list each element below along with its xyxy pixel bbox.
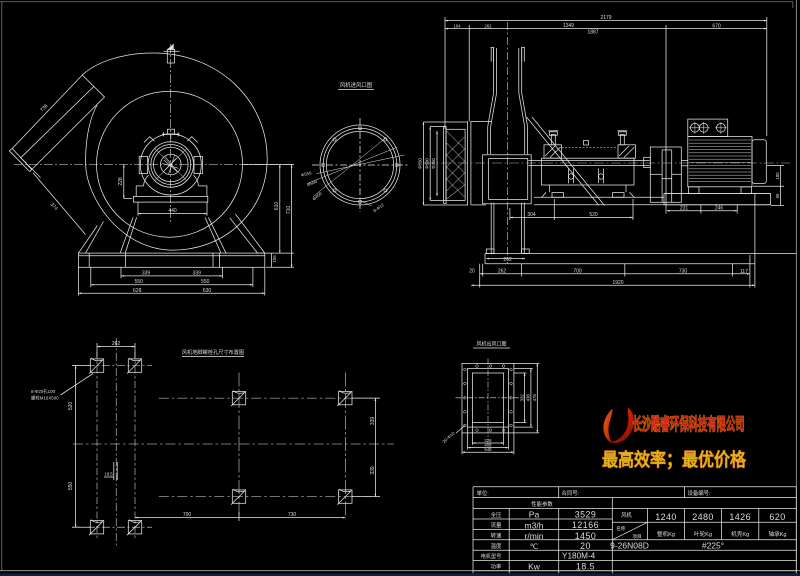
svg-text:9-26N08D: 9-26N08D bbox=[610, 541, 649, 551]
svg-text:730: 730 bbox=[288, 512, 297, 518]
svg-text:1240: 1240 bbox=[655, 512, 677, 522]
svg-text:339: 339 bbox=[370, 466, 376, 475]
svg-text:339: 339 bbox=[142, 270, 151, 276]
svg-text:630: 630 bbox=[203, 288, 212, 294]
svg-text:1349: 1349 bbox=[563, 23, 574, 29]
svg-text:246: 246 bbox=[715, 206, 724, 212]
svg-text:339: 339 bbox=[193, 270, 202, 276]
svg-text:610: 610 bbox=[274, 202, 280, 211]
svg-text:2179: 2179 bbox=[600, 15, 611, 21]
svg-text:Kw: Kw bbox=[528, 561, 541, 571]
svg-text:520: 520 bbox=[589, 212, 598, 218]
svg-text:440: 440 bbox=[168, 208, 177, 214]
svg-text:628: 628 bbox=[133, 288, 142, 294]
svg-text:设备编号:: 设备编号: bbox=[688, 489, 711, 497]
svg-text:1450: 1450 bbox=[575, 531, 597, 541]
svg-text:机壳Kg: 机壳Kg bbox=[731, 530, 749, 538]
svg-text:流量: 流量 bbox=[491, 521, 502, 529]
svg-text:332: 332 bbox=[519, 394, 524, 402]
svg-text:700: 700 bbox=[183, 512, 192, 518]
svg-text:2480: 2480 bbox=[692, 512, 714, 522]
svg-text:电机型号: 电机型号 bbox=[481, 552, 502, 560]
svg-text:m3/h: m3/h bbox=[525, 521, 544, 531]
svg-text:单位:: 单位: bbox=[477, 489, 489, 497]
svg-text:全压: 全压 bbox=[491, 511, 502, 519]
svg-text:Y180M-4: Y180M-4 bbox=[562, 552, 596, 561]
svg-text:550: 550 bbox=[135, 279, 144, 285]
svg-text:功率: 功率 bbox=[491, 563, 502, 571]
svg-text:700: 700 bbox=[573, 269, 582, 275]
svg-text:1920: 1920 bbox=[612, 280, 623, 286]
svg-text:670: 670 bbox=[712, 23, 721, 29]
svg-text:r/min: r/min bbox=[525, 531, 544, 541]
svg-text:548: 548 bbox=[484, 447, 492, 452]
svg-text:228: 228 bbox=[118, 177, 124, 186]
svg-text:339: 339 bbox=[370, 417, 376, 426]
svg-text:名称: 名称 bbox=[616, 525, 626, 532]
svg-text:转速: 转速 bbox=[491, 532, 502, 540]
svg-text:231: 231 bbox=[680, 206, 689, 212]
svg-text:262: 262 bbox=[484, 23, 492, 28]
svg-text:262: 262 bbox=[112, 341, 121, 347]
svg-text:性能参数: 性能参数 bbox=[531, 500, 553, 508]
svg-text:8-Φ20孔100: 8-Φ20孔100 bbox=[31, 388, 56, 395]
svg-text:262: 262 bbox=[503, 257, 512, 263]
svg-text:叶轮Kg: 叶轮Kg bbox=[694, 530, 712, 538]
svg-text:180: 180 bbox=[775, 172, 780, 180]
svg-text:12166: 12166 bbox=[572, 520, 599, 530]
svg-text:304: 304 bbox=[527, 212, 536, 218]
svg-text:整机Kg: 整机Kg bbox=[657, 530, 675, 538]
svg-text:合同号:: 合同号: bbox=[562, 489, 580, 497]
svg-text:730: 730 bbox=[679, 269, 688, 275]
svg-text:550: 550 bbox=[68, 482, 74, 491]
svg-text:风机进风口图: 风机进风口图 bbox=[340, 81, 372, 89]
svg-text:20: 20 bbox=[469, 269, 475, 275]
svg-text:18.5: 18.5 bbox=[576, 561, 595, 571]
svg-text:710: 710 bbox=[286, 206, 292, 215]
svg-text:1426: 1426 bbox=[729, 512, 751, 522]
svg-text:438: 438 bbox=[526, 394, 531, 402]
svg-text:18.5: 18.5 bbox=[104, 472, 113, 477]
svg-text:620: 620 bbox=[769, 512, 785, 522]
svg-text:最高效率；最优价格: 最高效率；最优价格 bbox=[602, 449, 747, 470]
svg-text:螺栓M16X500: 螺栓M16X500 bbox=[31, 394, 59, 401]
svg-text:65: 65 bbox=[775, 193, 780, 198]
svg-text:1887: 1887 bbox=[587, 29, 598, 35]
svg-text:520: 520 bbox=[68, 402, 74, 411]
svg-text:轴承Kg: 轴承Kg bbox=[768, 530, 786, 538]
svg-text:长沙酷睿环保科技有限公司: 长沙酷睿环保科技有限公司 bbox=[633, 414, 745, 434]
svg-text:262: 262 bbox=[498, 269, 507, 275]
svg-text:风机地脚螺栓孔尺寸布置图: 风机地脚螺栓孔尺寸布置图 bbox=[182, 348, 244, 356]
svg-text:3529: 3529 bbox=[575, 510, 597, 520]
svg-text:20: 20 bbox=[580, 541, 591, 551]
svg-text:℃: ℃ bbox=[530, 542, 539, 551]
svg-text:Φ550: Φ550 bbox=[418, 158, 423, 169]
svg-text:550: 550 bbox=[201, 279, 210, 285]
svg-text:风机: 风机 bbox=[621, 511, 632, 519]
svg-text:164: 164 bbox=[453, 23, 461, 28]
svg-text:温度: 温度 bbox=[491, 542, 502, 550]
svg-text:#225°: #225° bbox=[702, 541, 724, 551]
svg-text:106: 106 bbox=[272, 255, 277, 263]
svg-text:Pa: Pa bbox=[529, 510, 540, 520]
svg-text:风机出风口图: 风机出风口图 bbox=[476, 341, 506, 348]
svg-text:117: 117 bbox=[740, 269, 748, 275]
svg-text:478: 478 bbox=[532, 394, 537, 402]
